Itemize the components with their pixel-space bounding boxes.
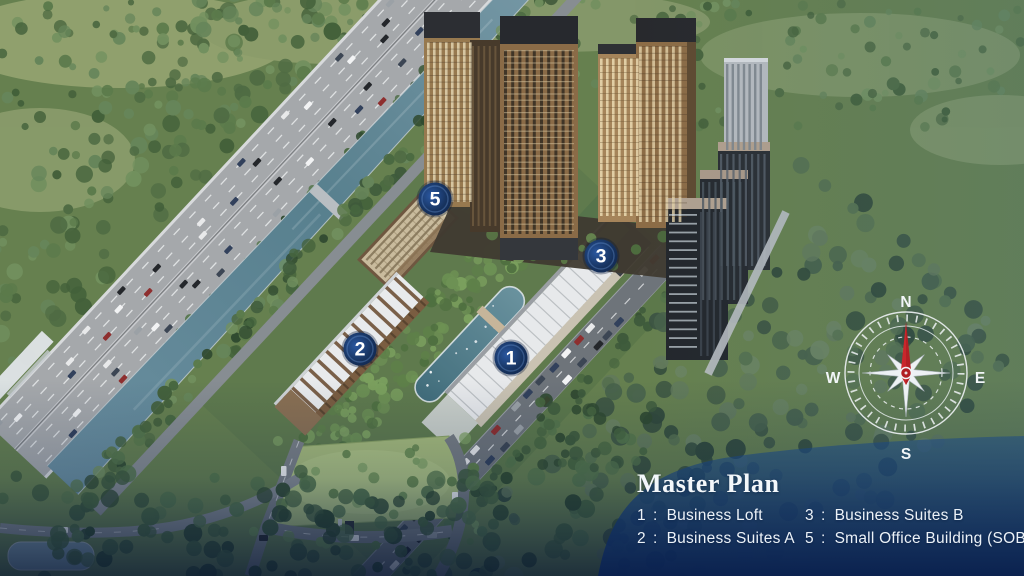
compass-north-label: N bbox=[900, 294, 911, 311]
marker-2: 2 bbox=[343, 332, 378, 367]
marker-5: 5 bbox=[418, 182, 453, 217]
marker-1: 1 bbox=[494, 341, 529, 376]
marker-3: 3 bbox=[584, 239, 619, 274]
compass-east-label: E bbox=[975, 370, 985, 387]
masterplan-screenshot: N E S W 1 2 3 5 Master Plan 1:Business L… bbox=[0, 0, 1024, 576]
marker-5-number: 5 bbox=[430, 189, 441, 211]
marker-3-number: 3 bbox=[596, 246, 607, 268]
compass-south-label: S bbox=[901, 446, 911, 463]
marker-1-number: 1 bbox=[506, 348, 517, 370]
compass-west-label: W bbox=[826, 370, 841, 387]
masterplan-render: N E S W 1 2 3 5 bbox=[0, 0, 1024, 576]
marker-2-number: 2 bbox=[355, 339, 366, 361]
